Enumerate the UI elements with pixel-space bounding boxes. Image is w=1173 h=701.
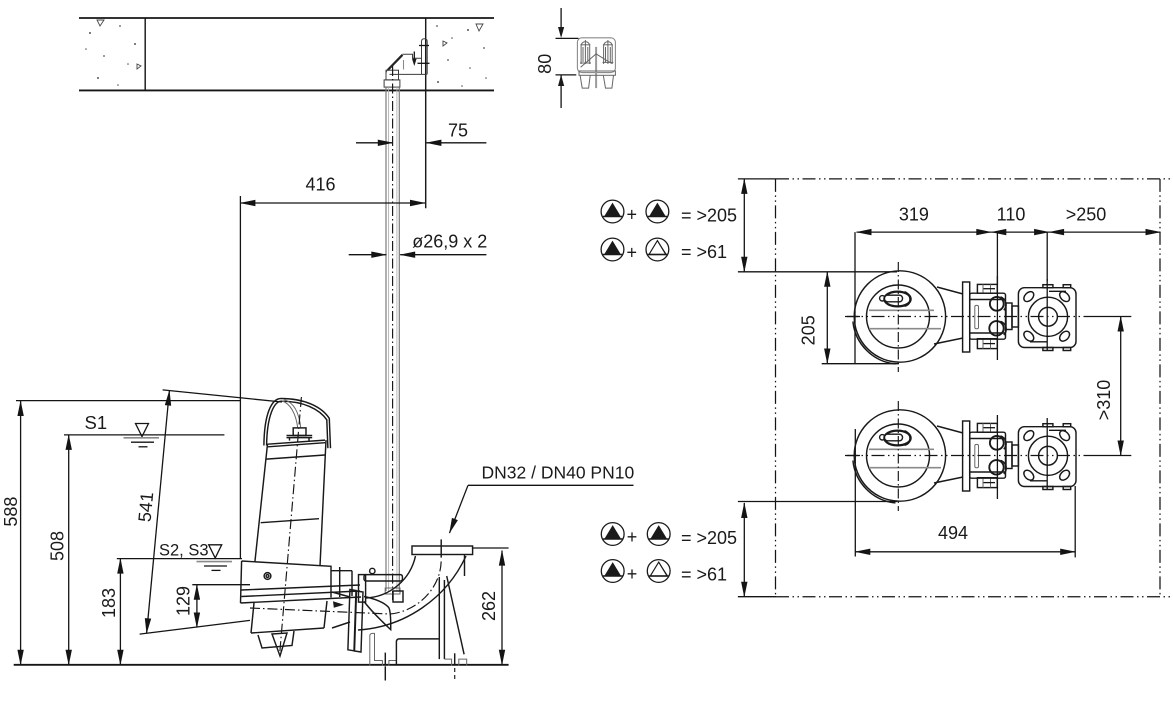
svg-text:262: 262 <box>479 591 499 621</box>
svg-text:+: + <box>627 243 638 263</box>
svg-text:541: 541 <box>135 491 158 523</box>
svg-text:= >205: = >205 <box>681 528 737 548</box>
svg-text:= >61: = >61 <box>681 242 727 262</box>
svg-text:110: 110 <box>997 205 1026 225</box>
svg-text:+: + <box>627 205 638 225</box>
svg-text:ø26,9 x 2: ø26,9 x 2 <box>412 231 487 251</box>
svg-text:S1: S1 <box>85 412 108 433</box>
svg-text:508: 508 <box>48 531 68 561</box>
svg-text:>310: >310 <box>1094 380 1114 421</box>
svg-text:DN32 / DN40 PN10: DN32 / DN40 PN10 <box>482 462 635 482</box>
svg-text:>250: >250 <box>1066 205 1107 225</box>
svg-text:129: 129 <box>174 586 194 616</box>
svg-text:416: 416 <box>305 174 335 194</box>
svg-text:+: + <box>627 564 638 584</box>
svg-text:494: 494 <box>938 523 968 543</box>
svg-text:+: + <box>627 527 638 547</box>
svg-text:183: 183 <box>99 588 119 618</box>
svg-text:75: 75 <box>448 121 468 141</box>
svg-text:319: 319 <box>899 205 929 225</box>
svg-text:= >61: = >61 <box>681 565 727 585</box>
svg-text:80: 80 <box>535 54 555 74</box>
svg-text:S2, S3: S2, S3 <box>159 542 209 560</box>
svg-text:588: 588 <box>1 497 21 527</box>
svg-text:= >205: = >205 <box>681 206 737 226</box>
svg-text:205: 205 <box>798 315 818 345</box>
